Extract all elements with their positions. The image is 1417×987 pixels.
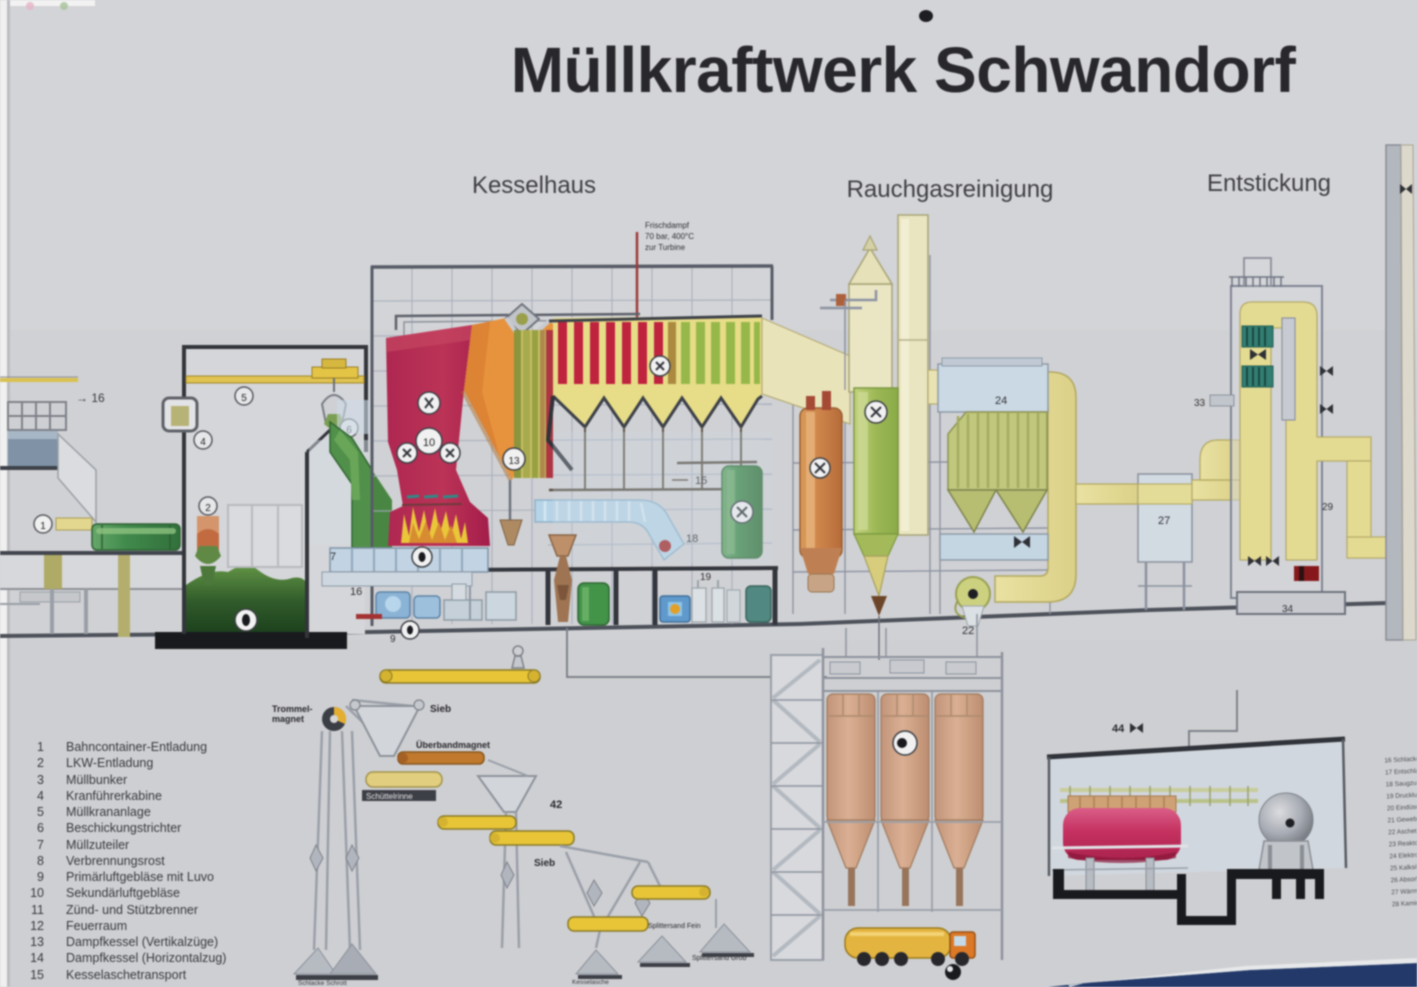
svg-text:27 Wärmet.: 27 Wärmet. — [1391, 888, 1417, 897]
svg-text:8: 8 — [37, 854, 44, 868]
svg-text:Kesselhaus: Kesselhaus — [472, 172, 596, 199]
svg-text:Kesselaschetransport: Kesselaschetransport — [66, 968, 187, 982]
svg-text:16: 16 — [350, 586, 362, 598]
svg-text:9: 9 — [390, 634, 396, 645]
svg-text:14: 14 — [30, 951, 44, 965]
svg-text:20 Eindüsung: 20 Eindüsung — [1387, 803, 1417, 812]
svg-text:17 Entschlacker: 17 Entschlacker — [1385, 767, 1417, 776]
svg-text:Feuerraum: Feuerraum — [66, 919, 127, 933]
svg-text:22: 22 — [962, 625, 974, 637]
svg-text:7: 7 — [330, 551, 336, 563]
svg-text:→ 16: → 16 — [76, 391, 105, 405]
svg-text:Frischdampf: Frischdampf — [645, 221, 690, 230]
svg-text:2: 2 — [37, 756, 44, 770]
svg-text:Sekundärluftgebläse: Sekundärluftgebläse — [66, 886, 180, 900]
svg-text:33: 33 — [1194, 398, 1206, 409]
svg-text:Bahncontainer-Entladung: Bahncontainer-Entladung — [66, 740, 207, 754]
svg-text:Trommel-: Trommel- — [272, 704, 313, 714]
svg-text:Splittersand Fein: Splittersand Fein — [648, 923, 701, 930]
svg-text:15: 15 — [30, 968, 44, 982]
svg-text:5: 5 — [37, 805, 44, 819]
svg-text:Müllzuteiler: Müllzuteiler — [66, 838, 129, 852]
svg-text:42: 42 — [550, 799, 562, 811]
svg-text:13: 13 — [30, 935, 44, 949]
svg-text:44: 44 — [1112, 723, 1125, 735]
svg-text:7: 7 — [37, 838, 44, 852]
svg-text:10: 10 — [423, 437, 435, 449]
svg-text:2: 2 — [205, 503, 211, 514]
svg-text:28 Kamin: 28 Kamin — [1392, 900, 1417, 908]
svg-text:Sieb: Sieb — [534, 858, 555, 869]
svg-text:Kranführerkabine: Kranführerkabine — [66, 789, 162, 803]
svg-text:22 Aschetransp.: 22 Aschetransp. — [1388, 827, 1417, 836]
svg-text:29: 29 — [1322, 502, 1334, 513]
svg-text:4: 4 — [37, 789, 44, 803]
svg-text:Zünd- und Stützbrenner: Zünd- und Stützbrenner — [66, 903, 198, 917]
svg-text:Dampfkessel (Horizontalzug): Dampfkessel (Horizontalzug) — [66, 951, 226, 965]
svg-text:1: 1 — [37, 740, 44, 754]
svg-text:Sieb: Sieb — [430, 704, 451, 715]
svg-text:4: 4 — [200, 437, 206, 448]
svg-text:25 Kalksilo: 25 Kalksilo — [1390, 864, 1417, 873]
svg-text:LKW-Entladung: LKW-Entladung — [66, 756, 153, 770]
svg-text:Verbrennungsrost: Verbrennungsrost — [66, 854, 165, 868]
svg-text:Primärluftgebläse mit Luvo: Primärluftgebläse mit Luvo — [66, 870, 214, 884]
svg-text:magnet: magnet — [272, 714, 304, 724]
svg-text:Müllkrananlage: Müllkrananlage — [66, 805, 151, 819]
svg-text:Überbandmagnet: Überbandmagnet — [416, 740, 490, 750]
svg-text:12: 12 — [30, 919, 44, 933]
svg-text:zur Turbine: zur Turbine — [645, 243, 686, 252]
svg-text:24: 24 — [995, 395, 1007, 407]
svg-text:21 Gewebefilter: 21 Gewebefilter — [1387, 815, 1417, 824]
svg-text:Kesselasche: Kesselasche — [572, 979, 609, 986]
svg-text:9: 9 — [37, 870, 44, 884]
svg-text:Schlacke Schrott: Schlacke Schrott — [298, 980, 347, 987]
svg-text:24 Elektrofilter: 24 Elektrofilter — [1389, 851, 1417, 860]
svg-text:5: 5 — [241, 393, 247, 404]
svg-text:Müllkraftwerk Schwandorf: Müllkraftwerk Schwandorf — [511, 34, 1297, 106]
svg-text:Schüttelrinne: Schüttelrinne — [366, 792, 413, 801]
svg-text:26 Absorber: 26 Absorber — [1390, 875, 1417, 884]
svg-text:1: 1 — [40, 521, 46, 532]
svg-text:27: 27 — [1158, 515, 1170, 527]
svg-text:19: 19 — [700, 572, 712, 583]
svg-text:3: 3 — [37, 773, 44, 787]
svg-text:70 bar, 400°C: 70 bar, 400°C — [645, 232, 694, 241]
svg-text:6: 6 — [37, 821, 44, 835]
svg-text:Dampfkessel (Vertikalzüge): Dampfkessel (Vertikalzüge) — [66, 935, 218, 949]
svg-text:23 Reaktor: 23 Reaktor — [1389, 840, 1417, 849]
svg-text:13: 13 — [508, 456, 520, 467]
svg-text:Beschickungstrichter: Beschickungstrichter — [66, 821, 181, 835]
svg-text:10: 10 — [30, 886, 44, 900]
svg-text:Müllbunker: Müllbunker — [66, 773, 127, 787]
svg-text:34: 34 — [1282, 604, 1294, 615]
svg-text:Entstickung: Entstickung — [1207, 170, 1331, 197]
svg-text:Rauchgasreinigung: Rauchgasreinigung — [847, 176, 1054, 203]
svg-text:11: 11 — [31, 903, 44, 917]
